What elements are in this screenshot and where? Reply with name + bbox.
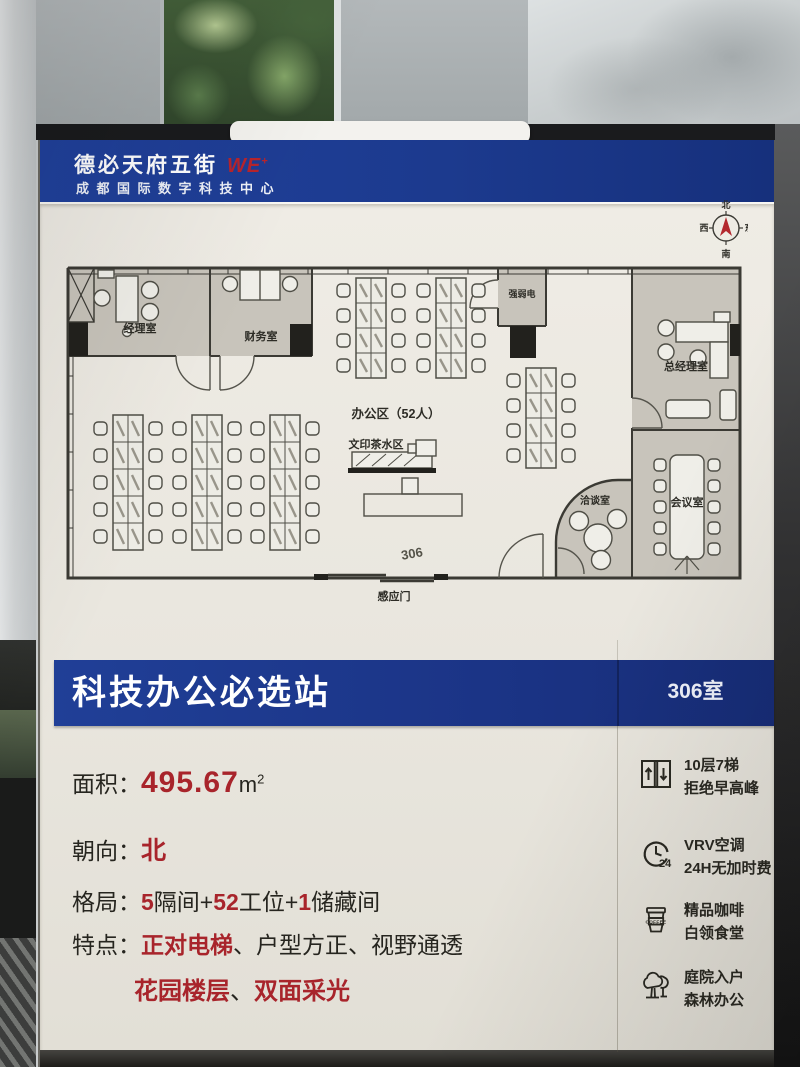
- layout-line: 格局：5隔间+52工位+1储藏间: [72, 883, 380, 917]
- amenity-garden-text: 庭院入户 森林办公: [684, 966, 744, 1012]
- trees-icon: [638, 968, 674, 1004]
- area-label: 面积：: [72, 771, 141, 797]
- clock-24h-icon: 24: [638, 836, 674, 872]
- compass-icon: 北 南 西 东: [699, 200, 748, 259]
- features-label: 特点：: [72, 932, 141, 958]
- features-line2: 花园楼层、双面采光: [134, 971, 350, 1006]
- amenity-coffee-text: 精品咖啡 白领食堂: [684, 899, 744, 945]
- amenity-elevator-text: 10层7梯 拒绝早高峰: [684, 754, 759, 800]
- area-unit: m2: [239, 772, 265, 797]
- photo-stage: 德必天府五街WE+ 成都国际数字科技中心: [0, 0, 800, 1067]
- entrance-door-label: 感应门: [378, 589, 411, 603]
- floor-green-strip: [0, 710, 36, 778]
- layout-value: 5隔间+52工位+1储藏间: [141, 889, 380, 915]
- poster-bottom-frame: [40, 1050, 774, 1067]
- poster-header: 德必天府五街WE+ 成都国际数字科技中心: [40, 140, 774, 202]
- glass-panel: [528, 0, 800, 127]
- area-line: 面积：495.67m2: [72, 765, 264, 800]
- features-line1: 特点：正对电梯、户型方正、视野通透: [72, 926, 463, 960]
- features-value-2: 花园楼层、双面采光: [134, 978, 350, 1005]
- storage-closet: [510, 326, 536, 358]
- compass-east-label: 东: [744, 222, 748, 233]
- banner-room-tag: 306室: [617, 660, 774, 726]
- compass-west-label: 西: [699, 223, 708, 233]
- features-value-1: 正对电梯、户型方正、视野通透: [141, 932, 463, 958]
- svg-text:COFFEE: COFFEE: [645, 919, 666, 924]
- brand-we-mark: WE+: [227, 155, 269, 177]
- poster-seam: [617, 726, 618, 1052]
- gm-office-label: 总经理室: [664, 359, 708, 373]
- svg-text:24: 24: [659, 858, 672, 870]
- area-value: 495.67: [141, 766, 239, 799]
- elevator-icon: [638, 756, 674, 792]
- floor-plan: 经理室 财务室 强弱电 总经理室 会议室 洽谈室 办公区（52人） 文印茶水区 …: [64, 200, 748, 610]
- utility-room-label: 强弱电: [508, 288, 535, 299]
- poster-subtitle: 成都国际数字科技中心: [76, 178, 281, 197]
- open-office-label: 办公区（52人）: [352, 406, 441, 421]
- amenity-garden: 庭院入户 森林办公: [638, 965, 768, 1017]
- amenity-elevator: 10层7梯 拒绝早高峰: [638, 753, 768, 805]
- section-banner: 科技办公必选站 306室: [54, 660, 774, 726]
- orientation-label: 朝向：: [72, 838, 141, 864]
- brand-logo: 德必天府五街WE+: [74, 149, 269, 179]
- poster-seam-on-banner: [617, 660, 619, 726]
- window-frame-right: [334, 0, 341, 127]
- orientation-value: 北: [141, 837, 166, 865]
- orientation-line: 朝向：北: [72, 831, 166, 867]
- manager-office-label: 经理室: [124, 321, 157, 335]
- striped-carpet: [0, 938, 36, 1067]
- window-trees-view: [164, 0, 336, 127]
- amenity-hvac-text: VRV空调 24H无加时费: [684, 834, 772, 880]
- layout-label: 格局：: [72, 889, 141, 915]
- meeting-room-label: 会议室: [671, 495, 704, 509]
- compass-south-label: 南: [721, 248, 730, 259]
- negotiation-room-label: 洽谈室: [580, 494, 610, 507]
- amenity-hvac: 24 VRV空调 24H无加时费: [638, 833, 768, 885]
- compass-north-label: 北: [721, 200, 730, 210]
- floor-dark-lower: [0, 778, 36, 938]
- brand-name: 德必天府五街: [74, 154, 218, 177]
- room-number-label: 306: [400, 544, 424, 563]
- floor-dark: [0, 640, 36, 710]
- right-background-shadow: [774, 124, 800, 1067]
- print-tea-label: 文印茶水区: [349, 437, 404, 451]
- left-wall: [0, 0, 36, 660]
- banner-title: 科技办公必选站: [72, 660, 331, 726]
- coffee-icon: COFFEE: [638, 901, 674, 937]
- finance-office-label: 财务室: [244, 329, 278, 343]
- amenity-coffee: COFFEE 精品咖啡 白领食堂: [638, 898, 768, 950]
- poster-seam-upper: [617, 640, 618, 660]
